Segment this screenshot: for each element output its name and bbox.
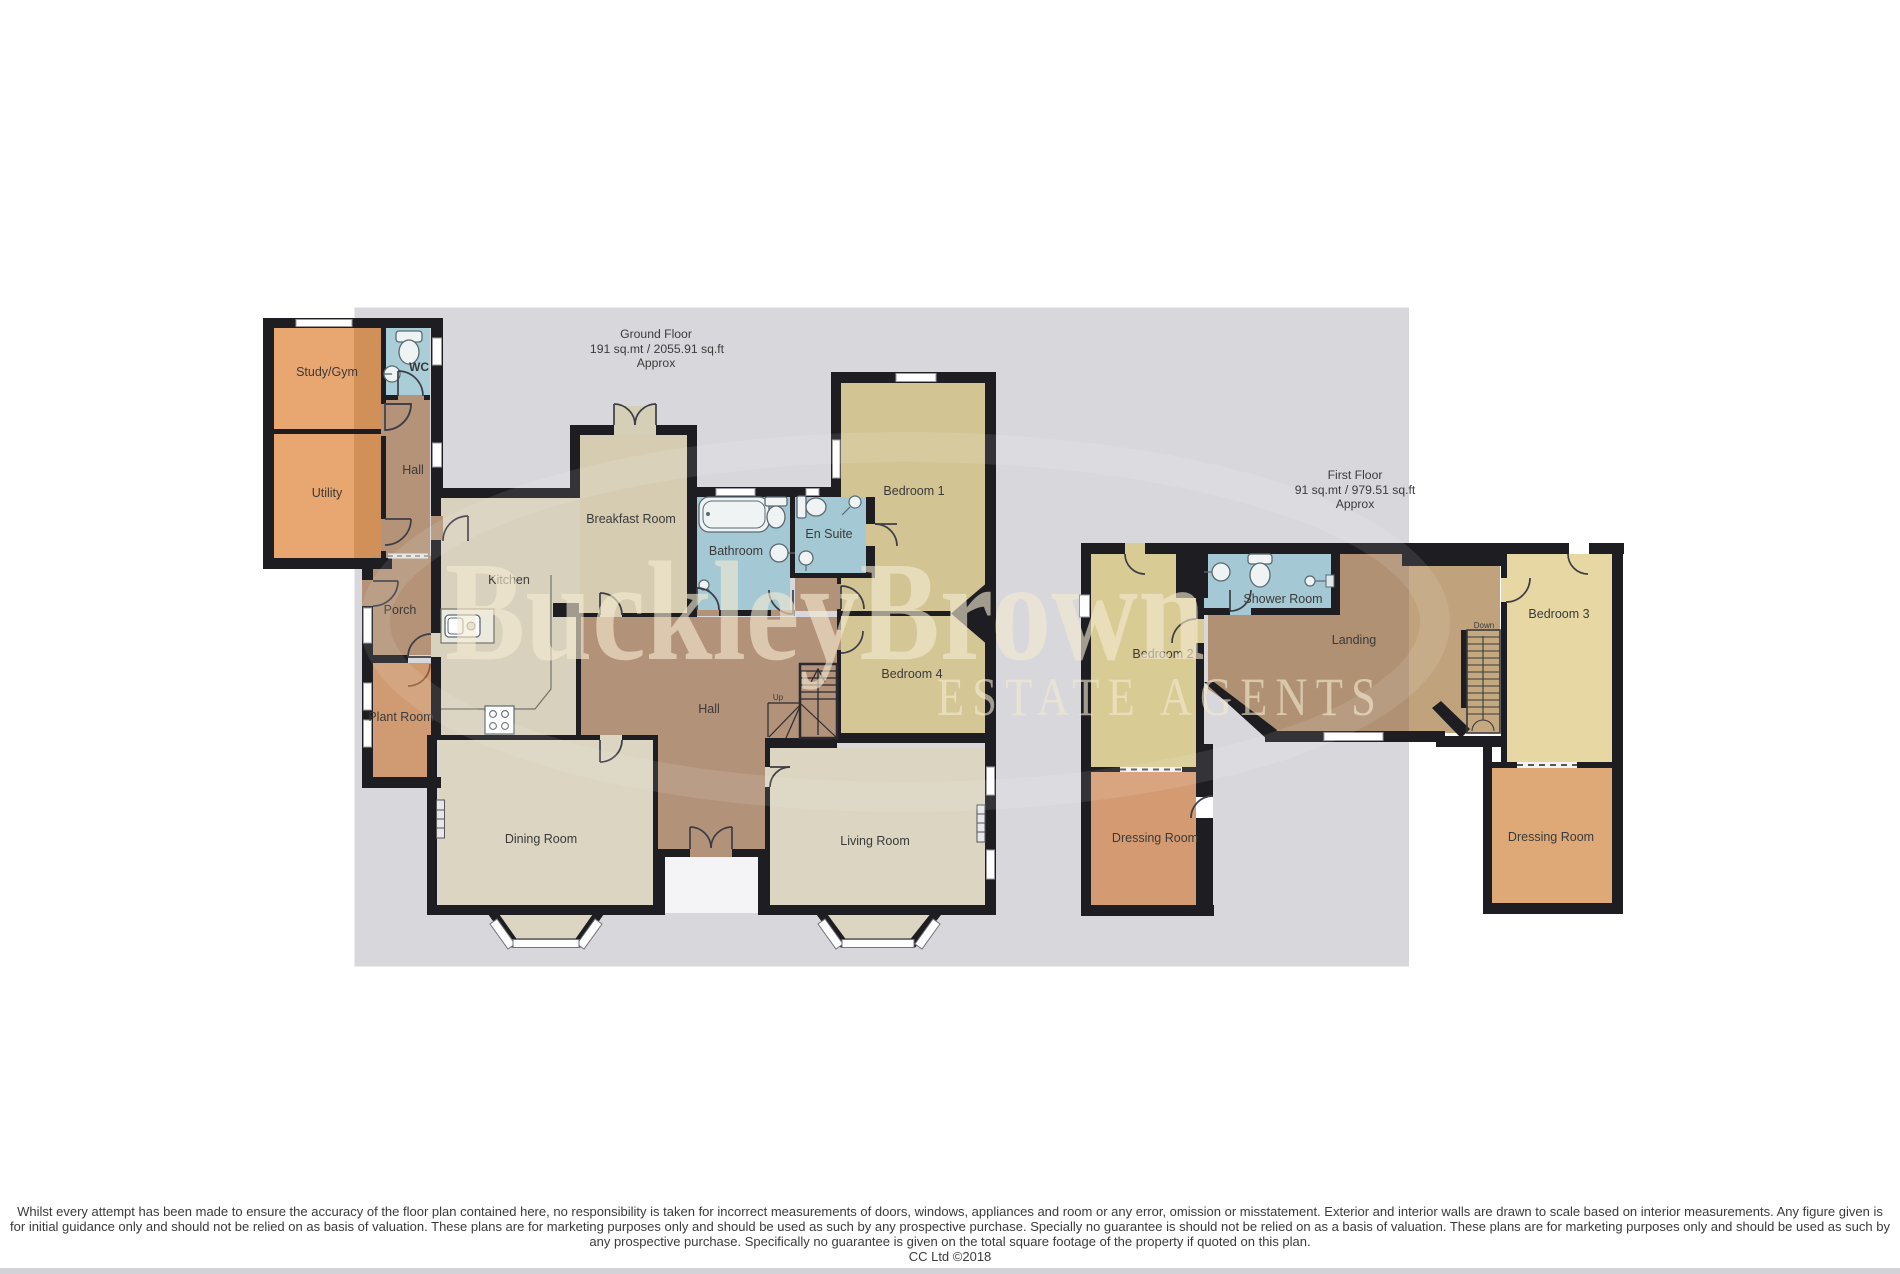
svg-text:Bedroom 3: Bedroom 3 bbox=[1528, 607, 1589, 621]
svg-text:WC: WC bbox=[409, 360, 429, 374]
svg-text:Ground Floor: Ground Floor bbox=[620, 327, 692, 341]
svg-text:Dining Room: Dining Room bbox=[505, 832, 577, 846]
svg-text:Breakfast Room: Breakfast Room bbox=[586, 512, 676, 526]
svg-text:Bedroom 1: Bedroom 1 bbox=[883, 484, 944, 498]
svg-text:Shower Room: Shower Room bbox=[1243, 592, 1322, 606]
svg-text:191 sq.mt / 2055.91 sq.ft: 191 sq.mt / 2055.91 sq.ft bbox=[590, 342, 725, 356]
svg-text:any prospective purchase. Spec: any prospective purchase. Specifically n… bbox=[589, 1234, 1310, 1249]
svg-text:for initial guidance only and: for initial guidance only and should not… bbox=[10, 1219, 1890, 1234]
svg-text:Approx: Approx bbox=[637, 356, 676, 370]
svg-text:91 sq.mt / 979.51 sq.ft: 91 sq.mt / 979.51 sq.ft bbox=[1295, 483, 1416, 497]
svg-text:Landing: Landing bbox=[1332, 633, 1377, 647]
svg-text:Living Room: Living Room bbox=[840, 834, 909, 848]
svg-text:Utility: Utility bbox=[312, 486, 343, 500]
svg-text:Study/Gym: Study/Gym bbox=[296, 365, 358, 379]
svg-text:CC Ltd ©2018: CC Ltd ©2018 bbox=[909, 1249, 992, 1264]
svg-text:Down: Down bbox=[1474, 621, 1494, 630]
svg-text:Approx: Approx bbox=[1336, 497, 1375, 511]
svg-text:Up: Up bbox=[773, 693, 784, 702]
svg-text:Hall: Hall bbox=[698, 702, 720, 716]
svg-text:Dressing Room: Dressing Room bbox=[1508, 830, 1594, 844]
svg-text:Hall: Hall bbox=[402, 463, 424, 477]
svg-text:First Floor: First Floor bbox=[1328, 468, 1383, 482]
svg-text:Whilst every attempt has been: Whilst every attempt has been made to en… bbox=[17, 1204, 1883, 1219]
svg-text:ESTATE AGENTS: ESTATE AGENTS bbox=[937, 667, 1384, 727]
svg-text:Dressing Room: Dressing Room bbox=[1112, 831, 1198, 845]
